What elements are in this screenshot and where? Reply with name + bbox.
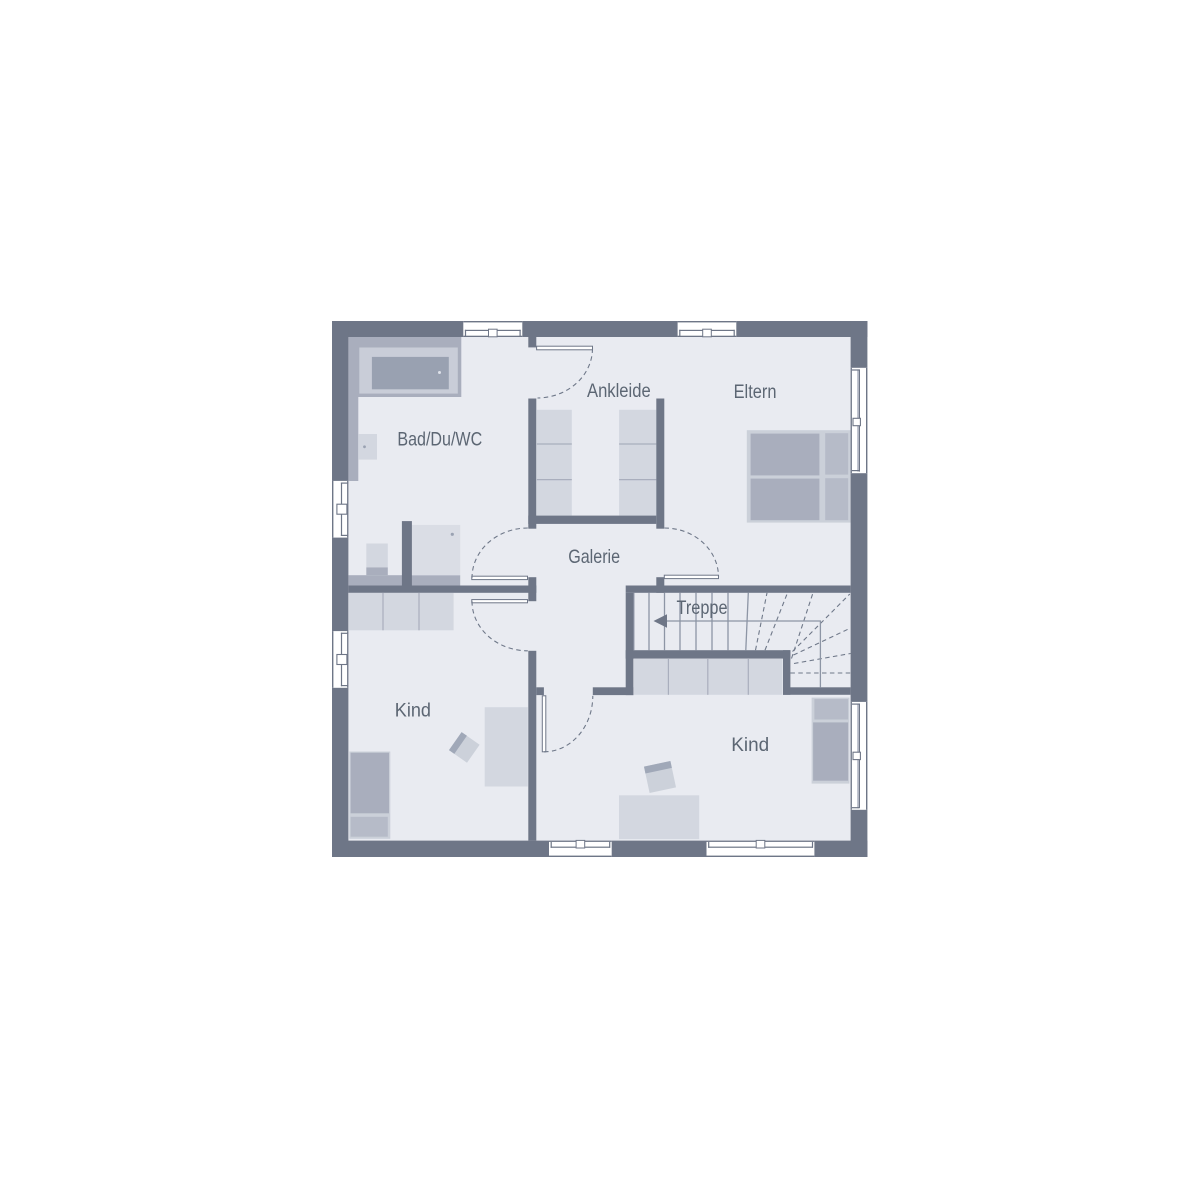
svg-text:Treppe: Treppe (677, 597, 728, 619)
svg-text:Eltern: Eltern (734, 381, 777, 403)
svg-text:Kind: Kind (731, 734, 769, 756)
svg-text:Ankleide: Ankleide (587, 380, 651, 402)
svg-text:Kind: Kind (395, 700, 431, 722)
svg-text:Bad/Du/WC: Bad/Du/WC (397, 429, 482, 451)
svg-text:Galerie: Galerie (568, 546, 620, 568)
